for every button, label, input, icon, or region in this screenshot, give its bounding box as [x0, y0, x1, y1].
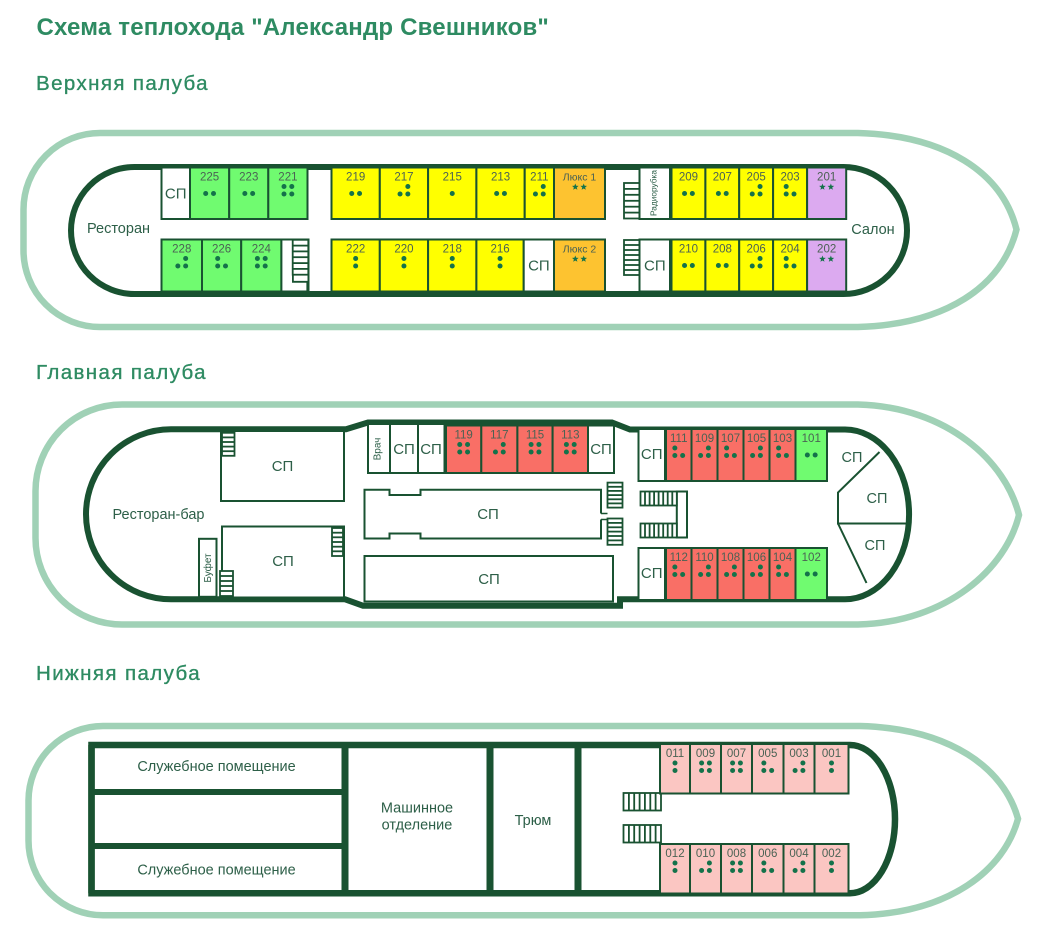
svg-text:Люкс 1: Люкс 1 — [563, 172, 597, 184]
svg-text:216: 216 — [490, 244, 509, 256]
svg-text:007: 007 — [727, 748, 746, 760]
svg-text:Буфет: Буфет — [202, 553, 214, 583]
svg-text:207: 207 — [713, 172, 732, 184]
svg-text:009: 009 — [696, 748, 715, 760]
svg-text:228: 228 — [172, 244, 191, 256]
svg-text:209: 209 — [679, 172, 698, 184]
svg-text:104: 104 — [773, 552, 793, 564]
svg-text:208: 208 — [713, 244, 732, 256]
svg-text:110: 110 — [695, 552, 713, 564]
svg-text:203: 203 — [781, 172, 800, 184]
svg-text:Служебное помещение: Служебное помещение — [137, 759, 295, 775]
svg-text:218: 218 — [443, 244, 462, 256]
svg-text:Служебное помещение: Служебное помещение — [137, 863, 295, 879]
svg-text:002: 002 — [822, 848, 841, 860]
svg-text:204: 204 — [781, 244, 801, 256]
svg-text:111: 111 — [670, 433, 687, 445]
svg-text:001: 001 — [822, 748, 841, 760]
svg-text:119: 119 — [454, 430, 472, 442]
svg-text:221: 221 — [278, 172, 297, 184]
svg-text:106: 106 — [747, 552, 766, 564]
svg-text:Салон: Салон — [851, 222, 894, 238]
svg-text:СП: СП — [272, 553, 294, 570]
svg-text:Врач: Врач — [373, 438, 384, 461]
svg-text:Трюм: Трюм — [515, 813, 552, 829]
svg-text:отделение: отделение — [382, 818, 453, 834]
svg-text:СП: СП — [641, 446, 663, 463]
svg-text:108: 108 — [721, 552, 740, 564]
svg-text:112: 112 — [670, 552, 688, 564]
svg-text:011: 011 — [666, 748, 684, 760]
svg-text:206: 206 — [747, 244, 766, 256]
svg-text:215: 215 — [443, 172, 462, 184]
svg-text:224: 224 — [252, 244, 272, 256]
svg-text:012: 012 — [665, 848, 684, 860]
svg-text:222: 222 — [346, 244, 365, 256]
svg-text:Люкс 2: Люкс 2 — [563, 244, 597, 256]
svg-text:225: 225 — [200, 172, 219, 184]
svg-text:220: 220 — [394, 244, 413, 256]
svg-text:213: 213 — [491, 172, 510, 184]
svg-text:210: 210 — [679, 244, 698, 256]
svg-text:СП: СП — [528, 258, 550, 275]
svg-text:219: 219 — [346, 172, 365, 184]
svg-text:Радиорубка: Радиорубка — [649, 170, 659, 216]
svg-text:003: 003 — [789, 748, 808, 760]
svg-text:СП: СП — [865, 538, 886, 554]
svg-text:211: 211 — [530, 172, 548, 184]
svg-text:113: 113 — [561, 430, 579, 442]
svg-text:СП: СП — [420, 441, 442, 458]
svg-text:103: 103 — [773, 433, 792, 445]
svg-text:СП: СП — [644, 258, 666, 275]
svg-text:008: 008 — [727, 848, 746, 860]
svg-text:205: 205 — [747, 172, 766, 184]
svg-text:Ресторан: Ресторан — [87, 221, 150, 237]
svg-text:226: 226 — [212, 244, 231, 256]
svg-text:006: 006 — [758, 848, 777, 860]
svg-text:СП: СП — [867, 491, 888, 507]
svg-text:Ресторан-бар: Ресторан-бар — [113, 507, 205, 523]
svg-text:004: 004 — [789, 848, 809, 860]
svg-text:СП: СП — [165, 186, 187, 203]
svg-text:105: 105 — [747, 433, 766, 445]
svg-text:СП: СП — [272, 458, 294, 475]
svg-text:201: 201 — [817, 172, 836, 184]
svg-text:202: 202 — [817, 244, 836, 256]
svg-text:117: 117 — [490, 430, 508, 442]
svg-text:005: 005 — [758, 748, 777, 760]
svg-text:101: 101 — [802, 433, 821, 445]
svg-text:СП: СП — [842, 450, 863, 466]
svg-text:Машинное: Машинное — [381, 801, 453, 817]
svg-text:СП: СП — [590, 441, 612, 458]
svg-text:102: 102 — [802, 552, 821, 564]
svg-text:107: 107 — [721, 433, 740, 445]
svg-text:СП: СП — [641, 565, 663, 582]
svg-text:109: 109 — [695, 433, 714, 445]
svg-text:СП: СП — [393, 441, 415, 458]
svg-text:010: 010 — [696, 848, 715, 860]
svg-text:СП: СП — [478, 571, 500, 588]
svg-text:217: 217 — [394, 172, 413, 184]
svg-text:115: 115 — [526, 430, 544, 442]
svg-text:223: 223 — [239, 172, 258, 184]
svg-text:СП: СП — [477, 506, 499, 523]
